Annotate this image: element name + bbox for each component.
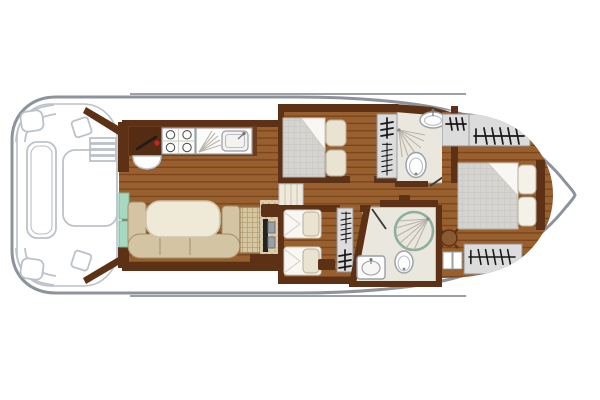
pillow: [303, 212, 319, 236]
bathroom-top-wall: [380, 200, 438, 207]
floorplan-svg: [0, 0, 600, 400]
pillow: [518, 165, 536, 194]
twin-bed: [284, 210, 321, 238]
cabin-top-wall: [278, 104, 398, 112]
throttle-knob-icon: [154, 140, 159, 145]
pillow: [303, 249, 319, 273]
stove-icon: [162, 128, 195, 154]
corridor-steps: [279, 184, 303, 206]
saloon-left-wall: [118, 247, 129, 268]
dinette-table: [146, 201, 220, 237]
bathroom-bottom-wall: [349, 281, 438, 287]
pillow: [518, 197, 536, 226]
wardrobe: [337, 208, 353, 272]
step-boxes: [443, 252, 462, 269]
toilet-icon: [395, 251, 413, 273]
wardrobe: [377, 114, 397, 178]
washbasin-icon: [357, 256, 385, 279]
bow-cabin: [440, 106, 553, 278]
pillow: [326, 120, 346, 146]
round-shower-icon: [395, 212, 433, 250]
boat-floorplan-image: [0, 0, 600, 400]
bed-head-wall: [536, 160, 545, 230]
dinette: [128, 201, 260, 258]
kitchen-sink-icon: [196, 128, 252, 154]
twin-bed: [284, 247, 321, 275]
wardrobe: [442, 114, 530, 146]
companionway-ladder: [263, 219, 268, 252]
deck-corner-cushion: [20, 110, 45, 133]
shower-room-bottom: [349, 200, 442, 287]
wardrobe: [464, 244, 522, 274]
saloon-left-wall: [118, 122, 129, 172]
stern-deck: [16, 104, 120, 286]
wicker-seat: [240, 207, 260, 253]
cabin-left-wall: [278, 212, 284, 283]
pillow: [326, 150, 346, 176]
bedside-cabinet: [318, 259, 335, 270]
deck-corner-cushion: [20, 258, 45, 281]
ladder-step: [268, 237, 275, 248]
double-cabin: [278, 104, 400, 183]
entry-doorway: [119, 172, 128, 193]
saloon-bottom-wall: [122, 262, 284, 271]
stool-icon: [440, 229, 458, 248]
saloon-top-wall: [122, 120, 284, 127]
saloon: [118, 120, 284, 271]
ladder-step: [268, 222, 275, 233]
boarding-steps: [90, 138, 116, 161]
bathroom-bottom-wall: [395, 181, 428, 187]
toilet-icon: [406, 153, 426, 178]
